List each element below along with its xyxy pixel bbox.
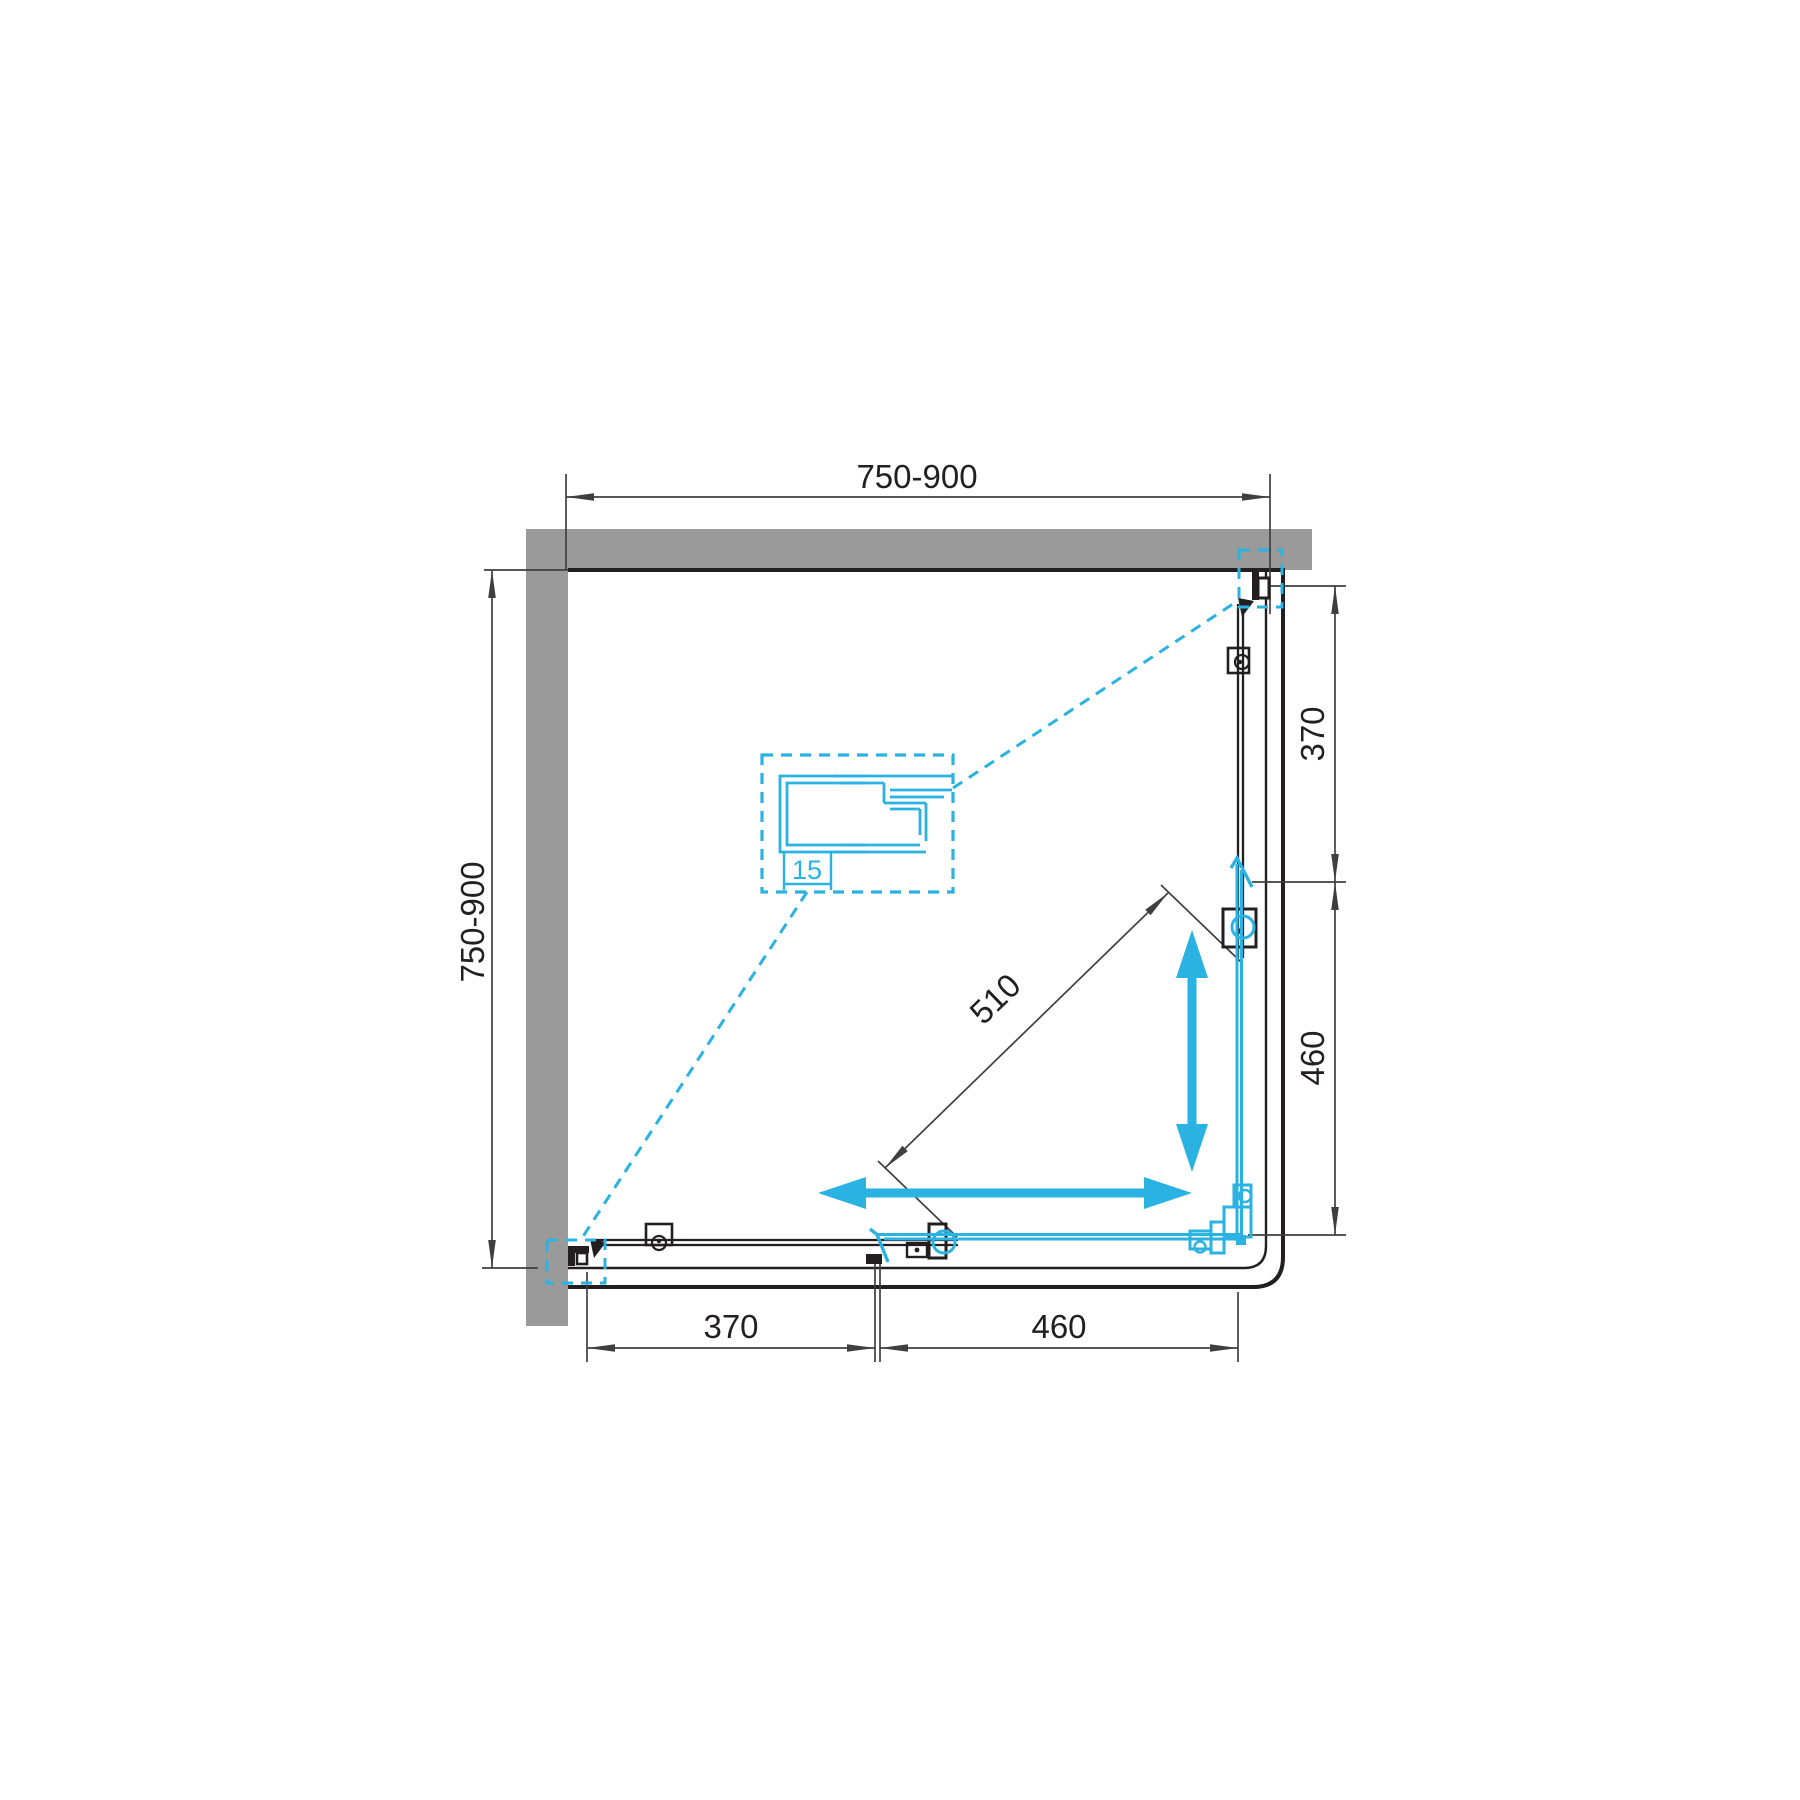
dimension-diagonal-entry: 510 <box>878 885 1241 1237</box>
dimension-label-bottom-left: 370 <box>703 1308 758 1345</box>
extension-line <box>1161 885 1241 962</box>
clamp-pin <box>657 1239 661 1243</box>
dimension-label-bottom-right: 460 <box>1031 1308 1086 1345</box>
shower-tray <box>568 570 1283 1287</box>
dimension-bottom-side: 370 460 <box>587 1258 1238 1362</box>
bottom-fixed-panel <box>568 1224 958 1266</box>
walls <box>526 529 1312 1326</box>
dimension-label-top: 750-900 <box>856 458 977 495</box>
guide-pin <box>915 1248 920 1253</box>
dimension-label-profile-adjustment: 15 <box>792 855 822 885</box>
wall-top <box>526 529 1312 570</box>
profile-detail-callout: 15 <box>547 550 1282 1283</box>
dimension-label-diagonal: 510 <box>962 966 1027 1031</box>
wall-profile-bottom-left-notch <box>577 1253 587 1264</box>
shower-enclosure-plan-drawing: 750-900 750-900 370 460 370 460 510 <box>0 0 1800 1800</box>
wall-profile-bottom-left <box>568 1253 575 1266</box>
callout-leader-line <box>953 600 1239 788</box>
arrow-down-head <box>1176 1124 1208 1172</box>
wall-left <box>526 529 568 1326</box>
door-travel-arrows <box>818 930 1208 1209</box>
arrow-right-head <box>1144 1177 1192 1209</box>
dimension-label-right-upper: 370 <box>1294 706 1331 761</box>
arrow-left-head <box>818 1177 866 1209</box>
dimension-label-right-lower: 460 <box>1294 1030 1331 1085</box>
wall-profile-top-right-notch <box>1258 578 1269 598</box>
dimension-line <box>885 893 1168 1168</box>
tray-inner-edge <box>568 570 1266 1268</box>
panel-end-bracket <box>1223 909 1256 947</box>
corner-joint <box>1236 1235 1246 1245</box>
tray-outer-edge <box>568 570 1283 1287</box>
dimension-label-left: 750-900 <box>454 861 491 982</box>
bottom-guide-block <box>866 1254 882 1264</box>
right-fixed-panel <box>1223 570 1269 958</box>
corner-roller <box>1195 1242 1206 1253</box>
arrow-up-head <box>1176 930 1208 978</box>
clamp-pin <box>1238 660 1242 664</box>
detail-adjustment-profile <box>834 776 952 852</box>
dimension-right-side: 370 460 <box>1248 586 1346 1235</box>
technical-drawing-page: 750-900 750-900 370 460 370 460 510 <box>0 0 1800 1800</box>
callout-leader-line <box>582 892 807 1238</box>
detail-wall-profile <box>780 776 866 852</box>
